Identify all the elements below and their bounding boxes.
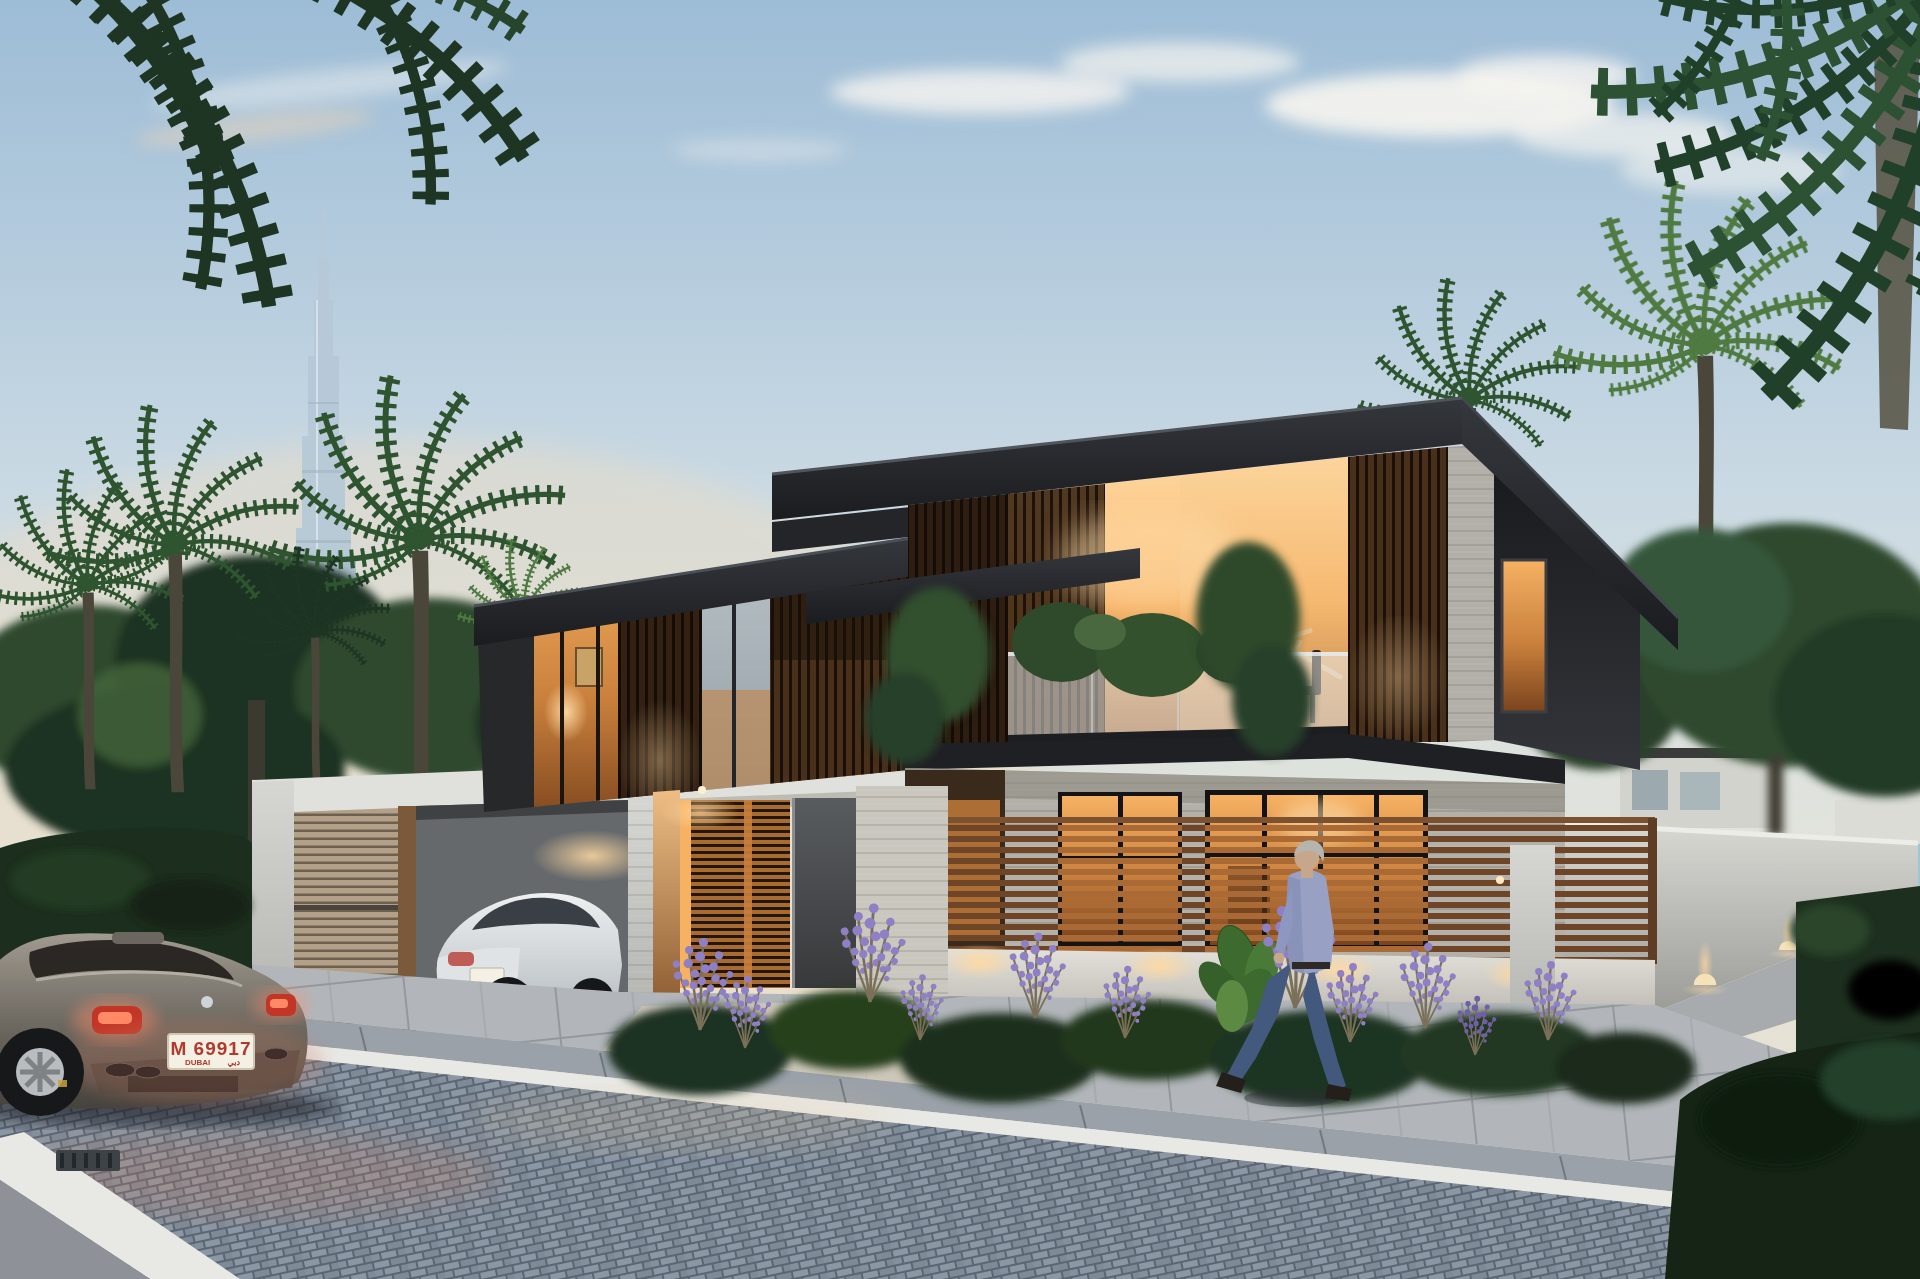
man-hand [1274,953,1285,964]
car-roof-vent [112,932,164,944]
storm-drain-grate [56,1150,120,1171]
entrance-door [792,798,856,988]
entrance [653,786,948,1012]
entrance-ceiling-light [698,786,706,794]
scene-canvas: M 69917 DUBAI دبي [0,0,1920,1279]
architectural-rendering: M 69917 DUBAI دبي [0,0,1920,1279]
fence-light [1496,876,1504,884]
car-wheel [0,1028,84,1116]
license-plate-city: DUBAI [185,1058,210,1067]
brake-caliper [58,1080,67,1087]
license-plate-city-arabic: دبي [228,1058,241,1067]
entry-light-reflection [470,1090,890,1150]
license-plate-code: M 69917 [171,1038,252,1059]
bentley-taillight [448,952,474,966]
license-plate: M 69917 DUBAI دبي [168,1034,254,1069]
man-belt [1292,962,1330,969]
mercedes-star [201,996,213,1008]
slot-window [1502,560,1546,712]
